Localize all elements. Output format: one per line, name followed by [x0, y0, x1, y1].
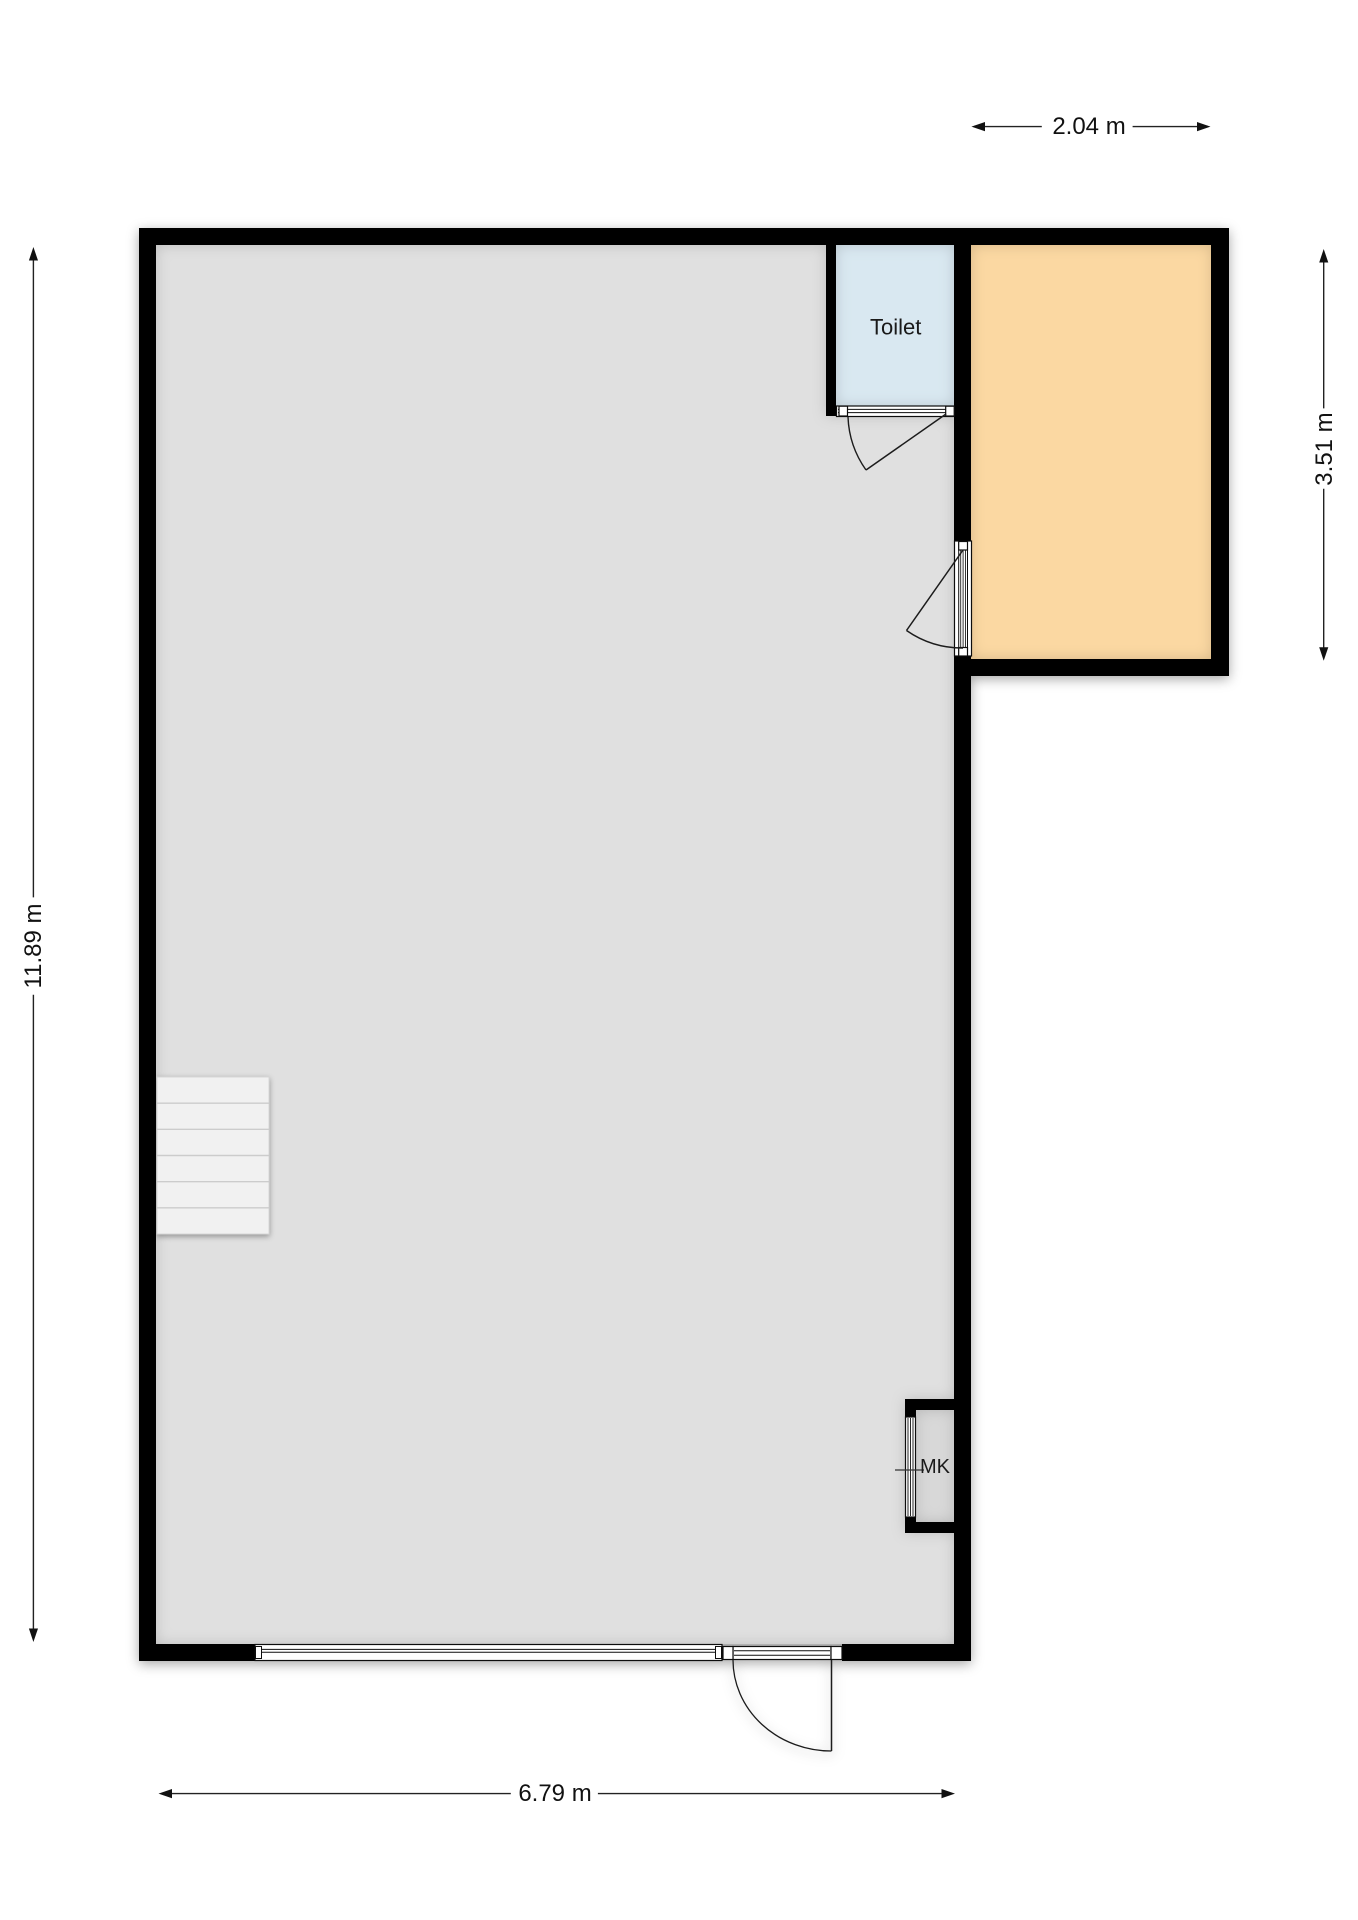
- svg-text:6.79 m: 6.79 m: [518, 1780, 591, 1807]
- svg-text:3.51 m: 3.51 m: [1311, 412, 1338, 485]
- svg-text:MK: MK: [920, 1456, 951, 1478]
- svg-text:11.89 m: 11.89 m: [20, 904, 47, 989]
- svg-text:Toilet: Toilet: [870, 315, 921, 340]
- svg-text:2.04 m: 2.04 m: [1052, 113, 1125, 140]
